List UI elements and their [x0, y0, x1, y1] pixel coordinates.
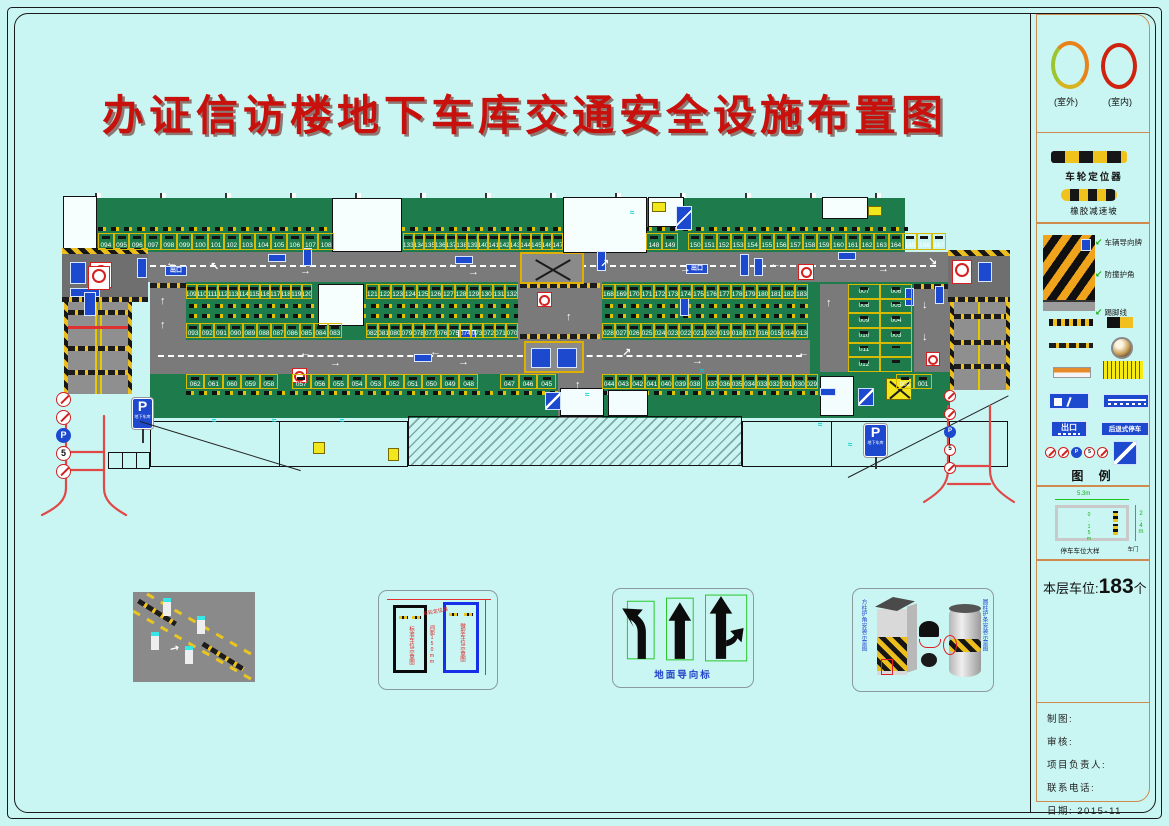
stall-number: 170 — [629, 291, 640, 298]
stall-cell: 012 — [848, 357, 880, 372]
road-arrow: → — [468, 267, 479, 278]
stall-cell: 163 — [874, 233, 888, 250]
stall-number: 160 — [833, 242, 844, 249]
stall-cell — [880, 357, 912, 372]
stall-cell: 025 — [641, 323, 654, 338]
stall-cell: 009 — [848, 313, 880, 328]
stall-cell: 032 — [768, 374, 780, 389]
stall-cell: 166 — [917, 233, 931, 250]
stall-cell: 090 — [229, 323, 243, 338]
stall-cell: 179 — [744, 284, 757, 299]
column-annotation: ↙防撞护角 — [1095, 269, 1135, 280]
stall-cell: 119 — [291, 284, 302, 299]
stall-cell: 041 — [645, 374, 659, 389]
stall-number: 039 — [675, 381, 686, 388]
stall-cell: 081 — [378, 323, 390, 338]
stall-cell: 073 — [471, 323, 483, 338]
stall-number: 083 — [330, 330, 341, 337]
round-column-label: 圆柱护条安装示意图 — [980, 599, 989, 651]
stall-cell: 161 — [846, 233, 860, 250]
stall-number: 162 — [862, 242, 873, 249]
stall-number: 144 — [520, 242, 531, 249]
ring-indoor-label: (室内) — [1093, 95, 1147, 108]
stall-cell: 155 — [760, 233, 774, 250]
road-arrow: ↓ — [922, 300, 928, 311]
stall-number: 014 — [783, 330, 794, 337]
stall-cell: 082 — [366, 323, 378, 338]
parking-sign-icon: P — [56, 428, 71, 443]
stall-number: 121 — [367, 291, 378, 298]
stall-number: 055 — [333, 381, 344, 388]
stall-cell: 046 — [519, 374, 538, 389]
stall-number: 087 — [273, 330, 284, 337]
stall-number: 182 — [783, 291, 794, 298]
stall-cell: 156 — [774, 233, 788, 250]
stall-number: 124 — [405, 291, 416, 298]
stall-cell: 020 — [705, 323, 718, 338]
stall-cell: 010 — [848, 328, 880, 343]
stall-number: 183 — [796, 291, 807, 298]
stall-number: 163 — [876, 242, 887, 249]
prohibition-icon — [56, 392, 71, 407]
titleblock: 制图:审核:项目负责人:联系电话:日期: 2015-11 — [1036, 702, 1150, 802]
stall-number: 172 — [655, 291, 666, 298]
round-column — [949, 607, 981, 677]
stall-number: 033 — [757, 381, 768, 388]
road-arrow: → — [458, 357, 469, 368]
stall-number: 102 — [226, 242, 237, 249]
dim-height: 2.4m — [1138, 511, 1144, 535]
stall-group: 109110111112113114115116117118119120 — [186, 284, 312, 299]
stall-cell: 021 — [692, 323, 705, 338]
legend-prohibition-row: P5 — [1045, 447, 1110, 465]
stall-cell: 149 — [662, 233, 678, 250]
stall-number: 179 — [745, 291, 756, 298]
stall-number: 048 — [463, 381, 474, 388]
stall-number: 139 — [467, 242, 478, 249]
stall-cell: 172 — [654, 284, 667, 299]
stall-cell: 013 — [795, 323, 808, 338]
stall-number: 136 — [435, 242, 446, 249]
stall-cell: 101 — [208, 233, 224, 250]
stall-number: 122 — [380, 291, 391, 298]
prohibition-icon — [944, 390, 956, 402]
drawing-sheet: 办证信访楼地下车库交通安全设施布置图 — [0, 0, 1169, 826]
detail-stall-schematic: 标准车位示意图 微型车位示意图 车轮定位器 间距150mm — [378, 590, 498, 690]
stall-number: 116 — [260, 291, 270, 298]
stall-number: 167 — [933, 242, 944, 249]
stall-number: 120 — [302, 291, 313, 298]
stall-cell: 087 — [271, 323, 285, 338]
booth — [151, 632, 159, 650]
road-arrow: ← — [300, 348, 311, 359]
stall-cell: 138 — [456, 233, 467, 250]
stall-cell: 139 — [467, 233, 478, 250]
stall-cell: 171 — [641, 284, 654, 299]
stall-group: 121122123124125126127128129130131132 — [366, 284, 518, 299]
stall-cell: 062 — [186, 374, 204, 389]
stall-cell: 038 — [688, 374, 702, 389]
stall-cell: 182 — [782, 284, 795, 299]
stall-number: 036 — [719, 381, 730, 388]
road-arrow: ↑ — [566, 312, 572, 323]
road-arrow: ↑ — [575, 380, 581, 391]
stall-cell: 153 — [731, 233, 745, 250]
stall-number: 080 — [390, 330, 401, 337]
stall-number: 130 — [481, 291, 492, 298]
stall-number: 108 — [321, 242, 332, 249]
stall-number: 078 — [413, 330, 424, 337]
stall-cell: 136 — [435, 233, 446, 250]
legend-crossing-sign — [1049, 393, 1089, 409]
stall-number: 104 — [258, 242, 269, 249]
stall-number: 025 — [642, 330, 653, 337]
booth — [163, 598, 171, 616]
stall-cell: 002 — [896, 374, 914, 389]
stall-cell: 026 — [628, 323, 641, 338]
parking-sign-icon: P — [1071, 447, 1082, 458]
stall-cell: 114 — [239, 284, 250, 299]
stall-number: 060 — [227, 381, 238, 388]
floor-plan: 出口 出口 ≈ ≈ ≈ ≈ ≈ ≈ ≈ ≈ P 地下车库 P 地下车库 — [0, 0, 1030, 826]
wheel-stop-graphic — [1051, 151, 1127, 163]
detail-entrance-iso: ↗ — [133, 592, 255, 682]
stall-cell: 120 — [302, 284, 313, 299]
stall-number: 057 — [296, 381, 307, 388]
stall-number: 153 — [733, 242, 744, 249]
stall-cell: 142 — [499, 233, 510, 250]
stall-number: 059 — [245, 381, 256, 388]
stall-cell: 123 — [391, 284, 404, 299]
prohibition-icon — [944, 408, 956, 420]
convex-mirror — [919, 621, 939, 637]
stall-number: 041 — [647, 381, 658, 388]
road-arrow: → — [878, 264, 889, 275]
legend-box-rings: (室外) (室内) — [1036, 14, 1150, 133]
stall-cell: 140 — [478, 233, 489, 250]
stall-cell: 047 — [500, 374, 519, 389]
stall-cell: 093 — [186, 323, 200, 338]
stall-number: 094 — [100, 242, 111, 249]
stall-number: 118 — [281, 291, 291, 298]
stall-number: 076 — [437, 330, 448, 337]
stall-number: 150 — [690, 242, 701, 249]
stall-group: 0280270260250240230220210200190180170160… — [602, 323, 808, 338]
stall-cell: 001 — [914, 374, 932, 389]
stall-number: 021 — [693, 330, 704, 337]
stall-number: 100 — [195, 242, 206, 249]
stall-cell: 028 — [602, 323, 615, 338]
stall-cell: 105 — [271, 233, 287, 250]
stall-cell: 031 — [781, 374, 793, 389]
stall-number: 123 — [392, 291, 403, 298]
speed-limit-icon: 5 — [1084, 447, 1095, 458]
stall-cell: 106 — [287, 233, 303, 250]
stall-cell: 051 — [404, 374, 423, 389]
stall-cell: 089 — [243, 323, 257, 338]
stall-number: 009 — [859, 317, 870, 324]
count-box: 本层车位:183个 — [1036, 560, 1150, 702]
stall-cell: 103 — [240, 233, 256, 250]
stall-cell: 076 — [436, 323, 448, 338]
dim-width: 5.3m — [1077, 491, 1090, 497]
stall-cell: 075 — [448, 323, 460, 338]
legend-block — [1107, 317, 1133, 328]
stall-cell: 181 — [769, 284, 782, 299]
road-arrow: → — [692, 356, 703, 367]
stall-number: 141 — [488, 242, 499, 249]
stall-number: 165 — [905, 242, 916, 249]
speed-bump-label: 橡胶减速坡 — [1037, 205, 1151, 217]
ramp-curves — [0, 0, 1030, 560]
stall-number: 029 — [806, 381, 817, 388]
stall-cell: 072 — [483, 323, 495, 338]
stall-number: 005 — [891, 302, 902, 309]
stall-cell: 144 — [520, 233, 531, 250]
stall-cell: 095 — [114, 233, 130, 250]
road-arrow: ← — [798, 348, 809, 359]
prohibition-sign-row: P5 — [944, 390, 958, 480]
booth — [185, 646, 193, 664]
stall-number: 044 — [604, 381, 615, 388]
stall-number: 077 — [425, 330, 436, 337]
stall-cell: 169 — [615, 284, 628, 299]
stall-group: 082081080079078077076075074073072071070 — [366, 323, 518, 338]
stall-number: 017 — [745, 330, 756, 337]
stall-cell: 040 — [659, 374, 673, 389]
stall-number: 002 — [900, 381, 911, 388]
stall-number: 027 — [616, 330, 627, 337]
stall-cell: 131 — [493, 284, 506, 299]
stall-number: 092 — [202, 330, 213, 337]
stall-cell: 098 — [161, 233, 177, 250]
stall-cell: 049 — [441, 374, 460, 389]
stall-number: 010 — [859, 332, 870, 339]
stall-number: 154 — [747, 242, 758, 249]
stall-cell: 152 — [717, 233, 731, 250]
stall-number: 028 — [603, 330, 614, 337]
stall-cell: 102 — [224, 233, 240, 250]
stall-number: 022 — [680, 330, 691, 337]
stall-cell: 175 — [692, 284, 705, 299]
stall-cell: 134 — [414, 233, 425, 250]
parking-sign-icon: P — [944, 426, 956, 438]
stall-group: 047046045 — [500, 374, 556, 389]
stall-number: 035 — [732, 381, 743, 388]
stall-cell: 110 — [197, 284, 208, 299]
stall-number: 103 — [242, 242, 253, 249]
stall-number: 082 — [366, 330, 377, 337]
stall-cell: 027 — [615, 323, 628, 338]
stall-number: 178 — [732, 291, 743, 298]
stall-cell: 129 — [467, 284, 480, 299]
stall-cell: 160 — [831, 233, 845, 250]
stall-cell: 017 — [744, 323, 757, 338]
stall-number: 126 — [430, 291, 441, 298]
legend-strip-bump — [1049, 343, 1093, 348]
stall-cell: 122 — [379, 284, 392, 299]
stall-number: 015 — [770, 330, 781, 337]
gap-label: 间距150mm — [429, 625, 436, 665]
stall-cell: 011 — [848, 343, 880, 358]
stall-number: 143 — [510, 242, 521, 249]
stall-cell: 060 — [223, 374, 241, 389]
standard-stall-label: 标准车位示意图 — [407, 626, 415, 665]
square-column — [877, 609, 907, 675]
stall-cell: 118 — [281, 284, 292, 299]
stall-number: 148 — [649, 242, 660, 249]
stall-cell: 162 — [860, 233, 874, 250]
legend-stairs-sign — [1113, 441, 1137, 465]
stall-cell: 112 — [218, 284, 229, 299]
stall-cell: 096 — [129, 233, 145, 250]
stall-cell: 016 — [757, 323, 770, 338]
stall-number: 006 — [891, 288, 902, 295]
column-photo — [1043, 235, 1095, 311]
stall-cell: 115 — [249, 284, 260, 299]
stall-number: 004 — [891, 317, 902, 324]
mini-stall-label: 微型车位示意图 — [458, 623, 466, 662]
stall-number: 075 — [448, 330, 459, 337]
count-unit: 个 — [1134, 581, 1147, 596]
stall-number: 018 — [732, 330, 743, 337]
stall-number: 161 — [847, 242, 858, 249]
stall-cell: 018 — [731, 323, 744, 338]
stall-cell: 023 — [666, 323, 679, 338]
stall-cell: 097 — [145, 233, 161, 250]
stall-cell: 035 — [731, 374, 743, 389]
stall-number: 096 — [132, 242, 143, 249]
road-arrow: ↑ — [160, 320, 166, 331]
prohibition-sign-row: P5 — [56, 392, 73, 482]
stall-cell: 127 — [442, 284, 455, 299]
road-arrow: ↗ — [600, 259, 609, 270]
titleblock-line: 联系电话: — [1047, 780, 1149, 794]
stall-number: 117 — [270, 291, 280, 298]
legend-exit-sign: 出口 — [1051, 421, 1087, 437]
stall-number: 110 — [197, 291, 207, 298]
legend-box-stall-detail: 5.3m 0.15m 2.4m 停车车位大样 车门 — [1036, 486, 1150, 560]
stall-number: 101 — [211, 242, 222, 249]
road-arrow: ↑ — [160, 296, 166, 307]
green-arrow-icon: ↙ — [1095, 237, 1103, 248]
stall-number: 106 — [289, 242, 300, 249]
stall-cell: 005 — [880, 299, 912, 314]
stall-cell: 083 — [328, 323, 342, 338]
stall-number: 026 — [629, 330, 640, 337]
stall-group: 057056055054053052051050049048 — [292, 374, 478, 389]
stall-number: 133 — [403, 242, 414, 249]
detail-ground-arrows: 地面导向标 — [612, 588, 754, 688]
stall-number: 107 — [305, 242, 316, 249]
stall-cell: 178 — [731, 284, 744, 299]
titleblock-line: 日期: 2015-11 — [1047, 803, 1149, 817]
road-arrow: ← — [430, 347, 441, 358]
legend-box-devices: 车轮定位器 橡胶减速坡 — [1036, 132, 1150, 223]
stall-cell: 130 — [480, 284, 493, 299]
stall-cell: 036 — [718, 374, 730, 389]
stall-number: 037 — [707, 381, 718, 388]
stall-cell: 168 — [602, 284, 615, 299]
stall-number: 132 — [506, 291, 517, 298]
stall-number: 093 — [188, 330, 199, 337]
stall-group: 044043042041040039038 — [602, 374, 702, 389]
stall-number: 125 — [418, 291, 429, 298]
stall-number: 171 — [642, 291, 653, 298]
stall-number: 098 — [163, 242, 174, 249]
stall-cell: 109 — [186, 284, 197, 299]
stall-number: 131 — [494, 291, 505, 298]
stall-number: 166 — [919, 242, 930, 249]
stall-number: 020 — [706, 330, 717, 337]
stall-number: 081 — [378, 330, 389, 337]
stall-number: 155 — [761, 242, 772, 249]
column-annotation: ↙车辆导向牌 — [1095, 237, 1142, 248]
prohibition-icon — [1058, 447, 1069, 458]
stall-cell: 107 — [303, 233, 319, 250]
stall-number: 032 — [769, 381, 780, 388]
sidebar-divider — [1030, 14, 1031, 812]
legend-reverse-sign: 后退式停车 — [1101, 422, 1149, 436]
stall-number: 113 — [228, 291, 238, 298]
stall-number: 112 — [218, 291, 228, 298]
stall-cell: 022 — [679, 323, 692, 338]
prohibition-icon — [1045, 447, 1056, 458]
stall-cell: 043 — [616, 374, 630, 389]
stall-number: 089 — [244, 330, 255, 337]
stall-group: 1331341351361371381391401411421431441451… — [403, 233, 563, 250]
stall-cell: 092 — [200, 323, 214, 338]
stall-number: 175 — [693, 291, 704, 298]
stall-number: 058 — [263, 381, 274, 388]
stall-cell: 148 — [646, 233, 662, 250]
stall-number: 043 — [618, 381, 629, 388]
legend-yellow-pad — [1103, 361, 1143, 379]
stall-cell: 003 — [880, 328, 912, 343]
stall-cell: 099 — [177, 233, 193, 250]
stall-cell: 024 — [654, 323, 667, 338]
stall-number: 016 — [758, 330, 769, 337]
stall-number: 054 — [352, 381, 363, 388]
stall-cell: 104 — [255, 233, 271, 250]
stall-cell: 071 — [495, 323, 507, 338]
stall-number: 011 — [859, 346, 869, 353]
stall-number: 169 — [616, 291, 627, 298]
stall-number: 046 — [523, 381, 534, 388]
green-arrow-icon: ↙ — [1095, 269, 1103, 280]
stall-cell: 048 — [459, 374, 478, 389]
stall-group: 093092091090089088087086085084083 — [186, 323, 342, 338]
road-arrow: → — [300, 266, 311, 277]
prohibition-icon — [944, 462, 956, 474]
stall-cell: 150 — [688, 233, 702, 250]
column-annotation-label: 防撞护角 — [1105, 269, 1135, 280]
road-arrow: ↘ — [928, 257, 937, 268]
legend-lane-sign — [1103, 394, 1149, 408]
stall-cell: 015 — [769, 323, 782, 338]
stall-cell: 164 — [889, 233, 903, 250]
stall-block: 007006008005009004010003011012 — [848, 284, 912, 372]
stall-number: 091 — [216, 330, 227, 337]
column-annotation-label: 车辆导向牌 — [1105, 237, 1143, 248]
stall-cell: 088 — [257, 323, 271, 338]
stall-cell: 146 — [542, 233, 553, 250]
stall-cell: 158 — [803, 233, 817, 250]
stall-cell: 008 — [848, 299, 880, 314]
count-value: 183 — [1099, 575, 1134, 598]
stall-number: 086 — [287, 330, 298, 337]
stall-cell: 170 — [628, 284, 641, 299]
